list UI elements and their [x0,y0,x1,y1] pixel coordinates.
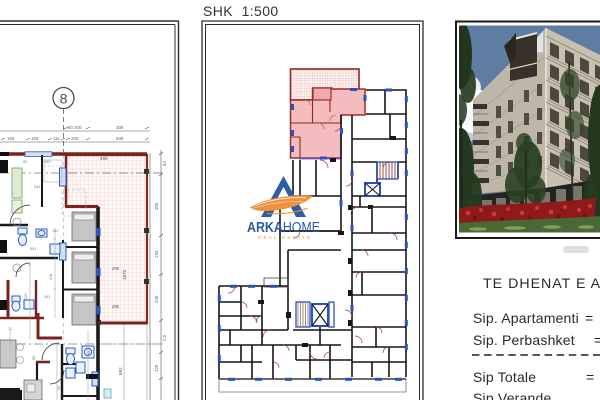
svg-text:120: 120 [154,364,159,372]
svg-text:160: 160 [52,228,59,233]
svg-text:85: 85 [87,351,91,355]
svg-text:541: 541 [30,246,37,251]
svg-text:12: 12 [8,326,12,331]
svg-text:200: 200 [71,136,79,141]
svg-text:60 200: 60 200 [68,125,82,130]
svg-text:TE DHENAT E APARTAMENTIT: TE DHENAT E APARTAMENTIT [483,276,600,292]
svg-text:240: 240 [154,295,159,303]
svg-text:=: = [586,369,594,385]
svg-text:8: 8 [60,91,68,107]
svg-text:2.0: 2.0 [162,334,167,341]
svg-text:160: 160 [31,136,39,141]
svg-text:90: 90 [23,159,28,164]
svg-text:160: 160 [44,159,51,164]
svg-text:80: 80 [32,356,36,360]
svg-text:=: = [585,310,593,326]
svg-text:1073: 1073 [122,269,127,280]
svg-text:308: 308 [116,125,124,130]
svg-text:296: 296 [112,266,120,271]
svg-text:341: 341 [34,184,41,189]
svg-text:318: 318 [49,274,53,280]
svg-text:Sip. Apartamenti: Sip. Apartamenti [473,310,579,326]
svg-text:Sip. Perbashket: Sip. Perbashket [473,332,575,348]
svg-text:194: 194 [154,250,159,258]
svg-text:341: 341 [44,294,51,299]
svg-text:296: 296 [112,304,120,309]
svg-text:SHK 1:500: SHK 1:500 [203,3,279,19]
svg-text:53: 53 [162,161,167,166]
svg-text:300: 300 [154,202,159,210]
svg-text:Sip Totale: Sip Totale [473,369,536,385]
svg-text:=: = [594,332,600,348]
svg-text:520: 520 [24,294,28,300]
svg-text:92: 92 [57,386,61,390]
svg-text:REAL ESTATE: REAL ESTATE [258,235,313,240]
svg-text:Sip Verande: Sip Verande [473,390,551,400]
svg-text:ARKAHOME: ARKAHOME [247,219,320,236]
svg-text:165: 165 [7,136,15,141]
svg-text:508: 508 [116,136,124,141]
svg-text:692: 692 [118,367,123,375]
svg-text:496: 496 [100,156,108,161]
svg-text:111: 111 [53,136,60,141]
